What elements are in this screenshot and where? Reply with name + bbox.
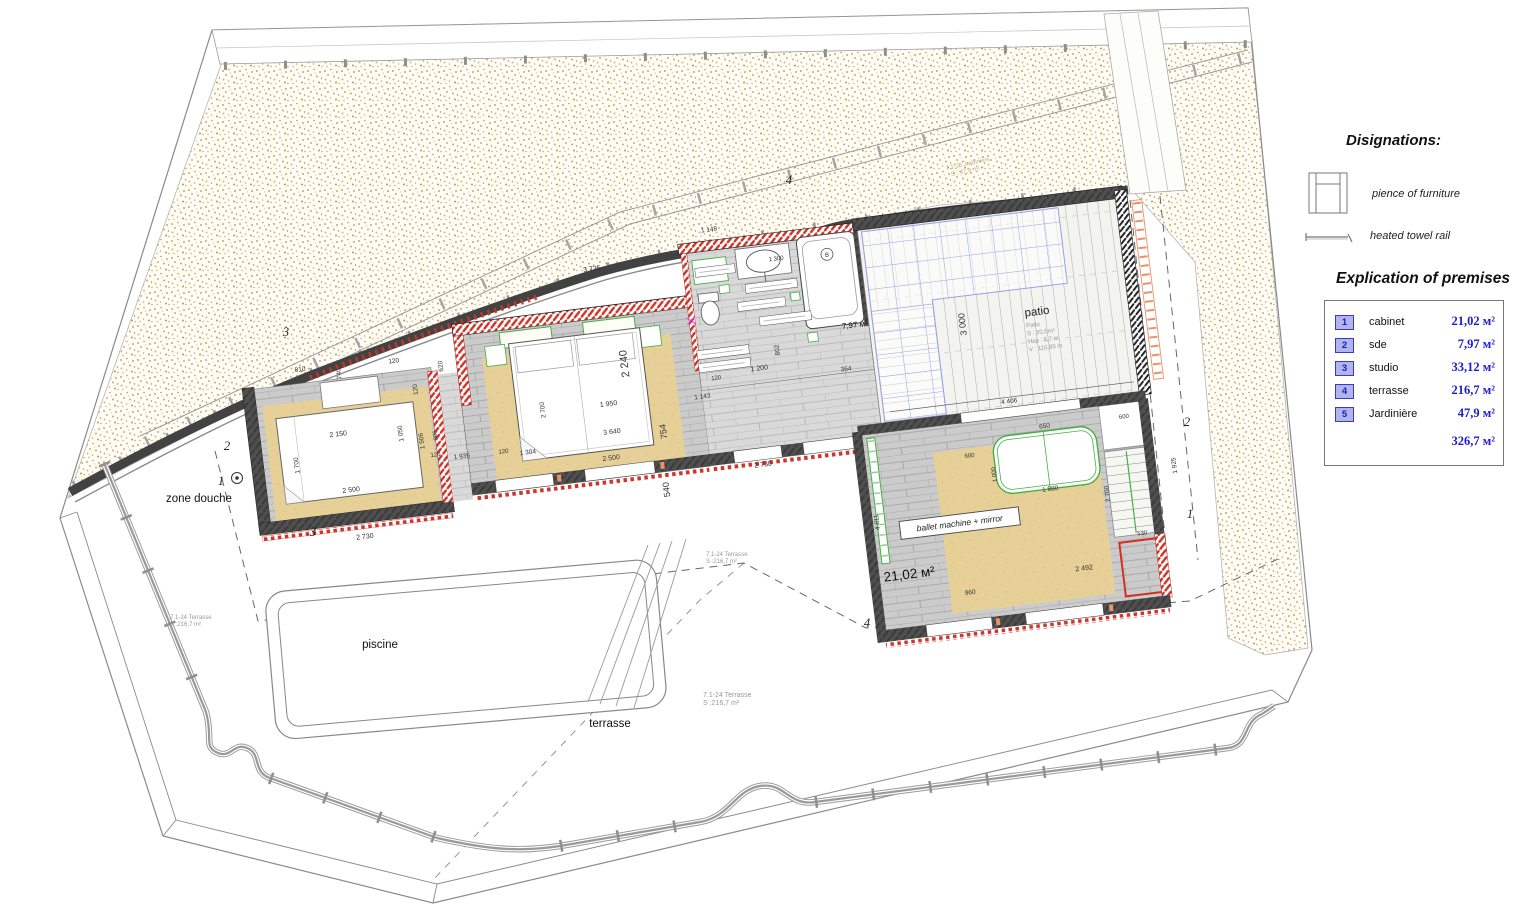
room-cabinet: ballet machine + mirror [851, 390, 1174, 649]
axis-marker: 4 [864, 616, 870, 630]
dimension-label: 810 [294, 366, 306, 374]
explication-title: Explication of premises [1336, 270, 1510, 288]
terrasse-note-line: S :216,7 m² [703, 700, 740, 707]
room-name: sde [1369, 339, 1387, 351]
furniture-icon [1306, 170, 1352, 216]
dimension-label: 1 925 [1170, 457, 1179, 474]
dimension-label: 120 [412, 383, 420, 395]
premises-table: 1 cabinet 21,02 м² 2 sde 7,97 м² 3 studi… [1324, 300, 1504, 466]
zone-douche-label: zone douche [166, 493, 232, 505]
table-row: 4 terrasse 216,7 м² [1325, 382, 1503, 404]
nightstand [485, 344, 507, 366]
terrasse-note-line: 7.1-24 Terrasse [703, 692, 752, 699]
dimension-label: 620 [437, 360, 445, 372]
total-area: 326,7 м² [1451, 434, 1495, 449]
dimension-label: 2 730 [356, 533, 374, 542]
axis-marker: 3 [309, 525, 316, 539]
table-row: 2 sde 7,97 м² [1325, 336, 1503, 358]
axis-marker: 1 [218, 474, 224, 488]
table-row: 3 studio 33,12 м² [1325, 359, 1503, 381]
room-studio [452, 295, 712, 501]
room-area: 47,9 м² [1458, 406, 1495, 421]
sofa [992, 425, 1102, 495]
dimension-label: 740 [335, 367, 343, 379]
terrasse-label: terrasse [589, 718, 631, 730]
bed-double [508, 328, 653, 461]
nightstand [640, 325, 662, 347]
room-area: 216,7 м² [1451, 383, 1495, 398]
axis-marker: 1 [1187, 507, 1193, 521]
dimension-label: 120 [388, 357, 400, 365]
table-row: 1 cabinet 21,02 м² [1325, 313, 1503, 335]
dimension-label: 364 [840, 365, 852, 373]
terrasse-note-line: 7.1-24 Terrasse [706, 552, 748, 558]
terrasse-note-line: 7.1-24 Terrasse [170, 615, 212, 621]
room-name: cabinet [1369, 316, 1404, 328]
room-name: terrasse [1369, 385, 1409, 397]
designations-title: Disignations: [1346, 132, 1441, 149]
bath-marker-label: B [825, 253, 830, 259]
axis-marker: 4 [786, 173, 792, 187]
room-shower [242, 365, 455, 542]
patio [852, 184, 1165, 428]
room-number-badge: 3 [1335, 361, 1354, 376]
dimension-label: 540 [661, 482, 673, 498]
axis-marker: 2 [1184, 415, 1190, 429]
room-name: Jardinière [1369, 408, 1417, 420]
room-name: studio [1369, 362, 1398, 374]
room-number-badge: 1 [1335, 315, 1354, 330]
dimension-label: 650 [1039, 422, 1051, 430]
dimension-label: 802 [774, 344, 782, 356]
room-area: 21,02 м² [1451, 314, 1495, 329]
axis-marker: 3 [282, 325, 289, 339]
table-total-row: 326,7 м² [1325, 433, 1503, 455]
furniture-label: pience of furniture [1372, 188, 1460, 200]
room-number-badge: 5 [1335, 407, 1354, 422]
towel-rail-icon [1304, 230, 1356, 244]
terrasse-note-line: S :216,7 m² [170, 622, 201, 628]
piscine-label: piscine [362, 639, 398, 651]
floor-plan-page: B [0, 0, 1536, 916]
table-row: 5 Jardinière 47,9 м² [1325, 405, 1503, 427]
axis-marker: 2 [224, 439, 230, 453]
towel-rail-label: heated towel rail [1370, 230, 1450, 242]
dimension-label: 2 730 [754, 461, 772, 470]
room-area: 7,97 м² [1458, 337, 1495, 352]
survey-target [232, 473, 243, 484]
room-area: 33,12 м² [1451, 360, 1495, 375]
room-number-badge: 2 [1335, 338, 1354, 353]
dimension-label: 754 [657, 423, 669, 439]
pool [264, 559, 667, 741]
dimension-label: 960 [964, 589, 976, 597]
room-number-badge: 4 [1335, 384, 1354, 399]
legend-panel: Disignations: pience of furniture heated… [1296, 118, 1526, 478]
terrasse-note-line: S :216,7 m² [706, 559, 737, 565]
